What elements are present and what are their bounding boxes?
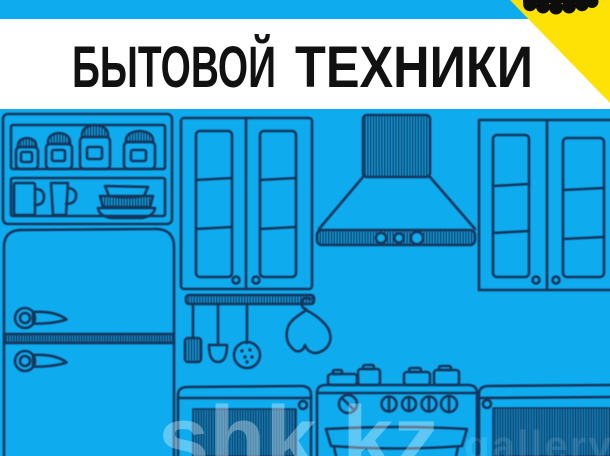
svg-text:ТЕХНИКИ: ТЕХНИКИ (295, 35, 533, 100)
svg-text:shk.kz: shk.kz (158, 388, 439, 456)
svg-text:galleryhip: galleryhip (464, 422, 610, 456)
svg-text:БЫТОВОЙ: БЫТОВОЙ (72, 35, 276, 100)
